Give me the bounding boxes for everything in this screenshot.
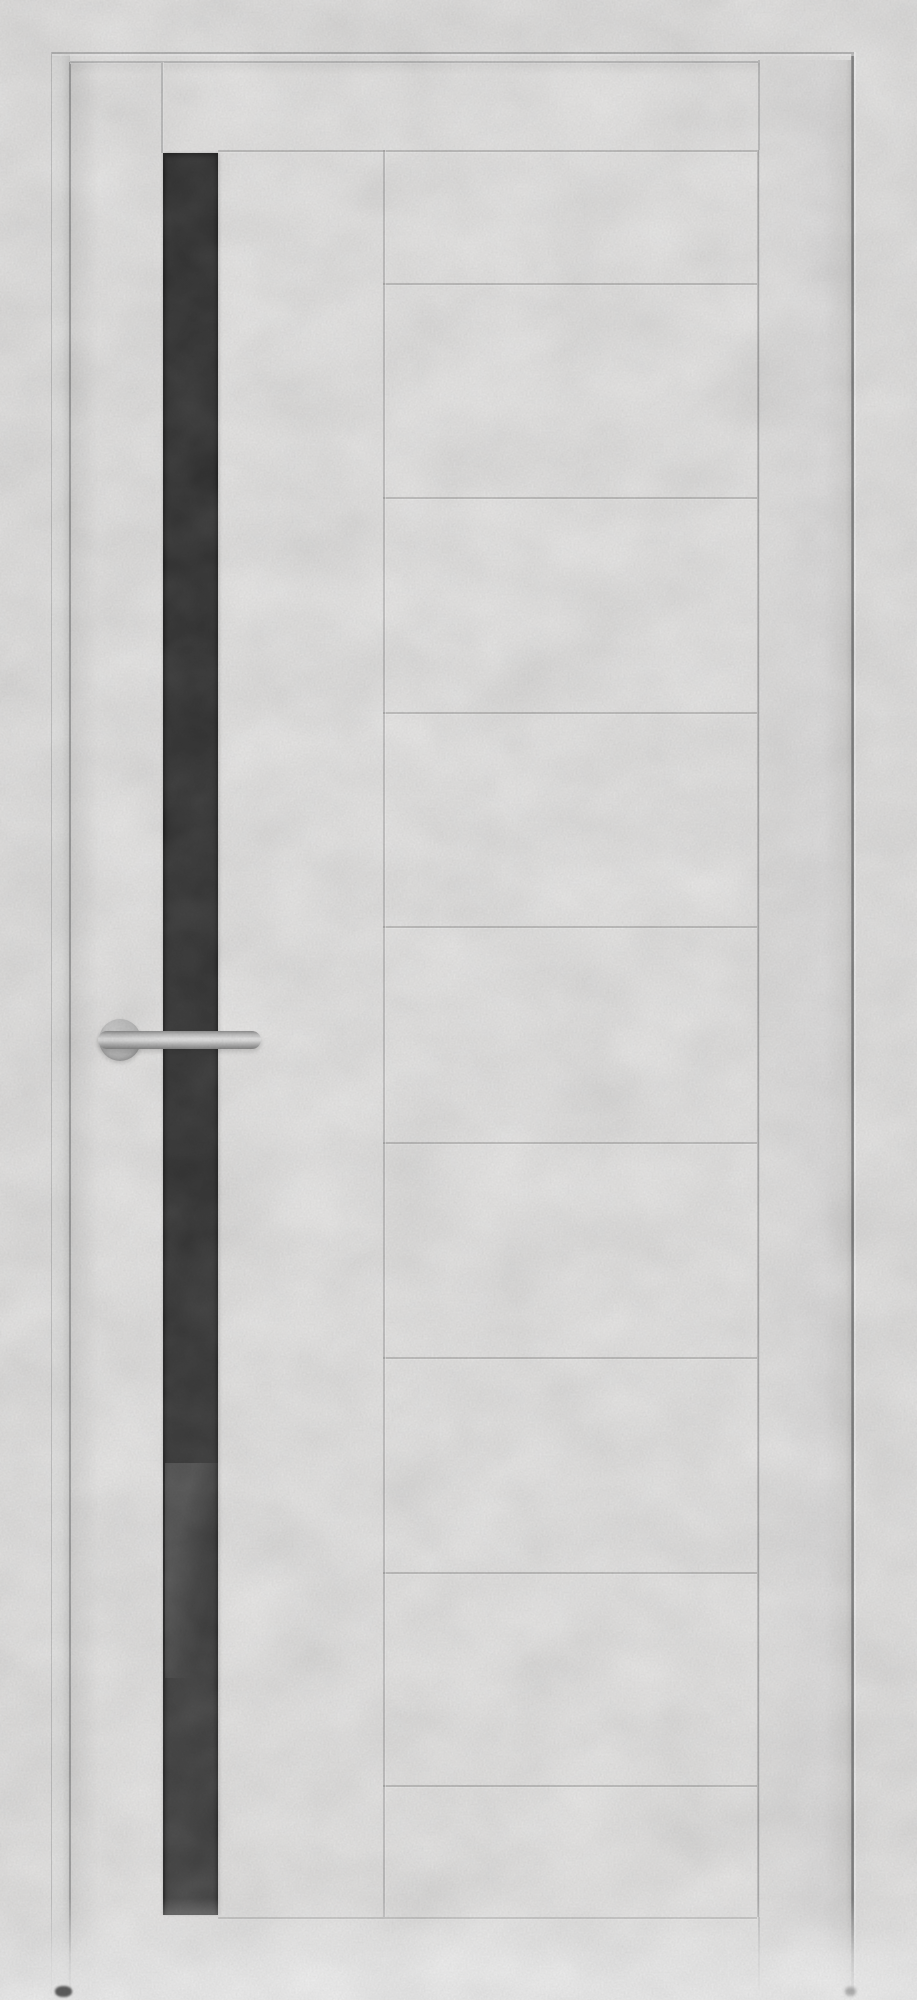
- panel-groove: [383, 712, 757, 714]
- door-product-photo: [0, 0, 917, 2000]
- panel-groove: [383, 1572, 757, 1574]
- panel-groove: [383, 1142, 757, 1144]
- panel-groove: [757, 150, 759, 1917]
- panel-groove: [383, 926, 757, 928]
- panel-groove: [383, 283, 757, 285]
- panel-groove: [383, 1357, 757, 1359]
- panel-groove-layer: [0, 0, 917, 2000]
- panel-groove: [383, 150, 385, 1917]
- panel-groove: [383, 497, 757, 499]
- panel-groove: [218, 1917, 757, 1919]
- glass-reflection: [165, 1463, 218, 1678]
- door-handle-lever: [98, 1031, 261, 1049]
- panel-groove: [218, 150, 757, 152]
- panel-groove: [383, 1785, 757, 1787]
